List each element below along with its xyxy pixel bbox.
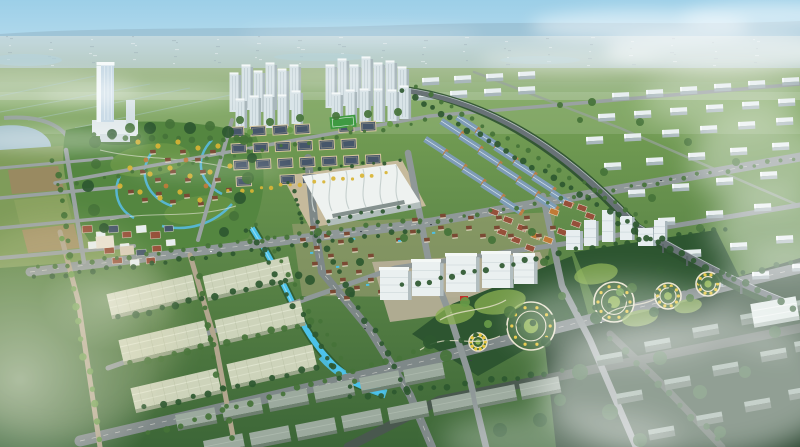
tree	[533, 256, 538, 261]
villa-building	[210, 150, 216, 155]
mall-building	[379, 267, 412, 300]
residential-slab-building	[484, 88, 501, 96]
tree	[331, 176, 335, 180]
tree	[207, 135, 213, 141]
tree	[397, 205, 401, 209]
tree	[255, 333, 260, 338]
distant-building	[176, 42, 178, 43]
tree	[598, 189, 603, 194]
tree	[300, 221, 303, 224]
distant-building	[134, 52, 138, 53]
tree	[616, 212, 622, 218]
tree	[266, 394, 272, 400]
distant-building	[256, 50, 259, 51]
tree-cluster	[155, 143, 160, 148]
tree	[520, 158, 527, 165]
tree	[337, 269, 342, 274]
tree	[340, 164, 343, 167]
tree	[205, 322, 212, 329]
tree	[189, 137, 196, 144]
tree	[373, 328, 379, 334]
tree	[516, 144, 520, 148]
tree-cluster	[236, 116, 244, 124]
flower-bed	[523, 343, 526, 346]
tree	[630, 184, 634, 188]
tree	[631, 227, 638, 234]
villa-building	[328, 254, 334, 259]
residential-slab-building	[672, 183, 689, 191]
tree-cluster	[287, 127, 293, 133]
tree	[279, 259, 283, 263]
tree	[431, 385, 436, 390]
tree	[488, 208, 492, 212]
tree	[449, 218, 453, 222]
tree-cluster	[247, 129, 253, 135]
tree	[421, 101, 427, 107]
tree-cluster	[144, 158, 149, 163]
tree	[427, 280, 432, 285]
tree	[576, 191, 583, 198]
tree	[360, 174, 364, 178]
villa-building	[480, 234, 486, 239]
tree	[613, 200, 617, 204]
tree-cluster	[165, 119, 175, 129]
tree	[417, 229, 421, 233]
tree	[290, 243, 294, 247]
tree	[560, 182, 566, 188]
tree	[547, 164, 551, 168]
tree-cluster	[636, 118, 644, 126]
tree-cluster	[345, 287, 355, 297]
highrise-tower	[388, 89, 400, 121]
distant-building	[297, 47, 300, 48]
tree-cluster	[222, 126, 234, 138]
old-town-block	[150, 231, 161, 239]
distant-building	[172, 40, 176, 41]
distant-building	[91, 39, 93, 40]
distant-building	[546, 38, 549, 39]
villa-building	[215, 178, 221, 183]
commercial-block	[272, 124, 289, 135]
tree	[272, 271, 278, 277]
tree-cluster	[488, 236, 496, 244]
tree	[352, 379, 357, 384]
tree	[233, 155, 236, 158]
tree	[379, 341, 384, 346]
tree	[418, 385, 424, 391]
distant-building	[10, 38, 13, 39]
villa-building	[212, 196, 218, 201]
villa-building	[440, 214, 446, 219]
tree-cluster	[460, 297, 470, 307]
tree	[302, 167, 305, 170]
distant-building	[131, 43, 135, 44]
tree	[162, 134, 168, 140]
tree	[204, 391, 211, 398]
tree-cluster	[88, 204, 100, 216]
tower-crown	[97, 62, 115, 66]
tree	[293, 142, 297, 146]
old-town-block	[164, 225, 173, 232]
tree	[461, 270, 466, 275]
tree	[556, 250, 562, 256]
tree	[294, 198, 298, 202]
villa-building	[170, 200, 176, 205]
villa-building	[410, 230, 416, 235]
tree	[260, 186, 263, 189]
tree-cluster	[175, 139, 180, 144]
distant-building	[423, 47, 426, 48]
tree	[296, 203, 299, 206]
villa-building	[330, 290, 336, 295]
tree-cluster	[144, 122, 156, 134]
tree	[330, 363, 336, 369]
tree	[211, 293, 218, 300]
tree	[199, 296, 204, 301]
screenshot-stage	[0, 0, 800, 447]
tree	[370, 210, 373, 213]
residential-slab-building	[598, 113, 615, 121]
tree	[361, 317, 368, 324]
city-master-plan-rendering	[0, 0, 800, 447]
tree-cluster	[394, 108, 402, 116]
tree	[400, 88, 405, 93]
tree	[192, 417, 197, 422]
tree-cluster	[205, 121, 215, 131]
tree-cluster	[117, 183, 122, 188]
tree	[163, 426, 170, 433]
tree	[260, 148, 264, 152]
tree	[502, 376, 508, 382]
tree	[477, 131, 483, 137]
tree	[415, 280, 421, 286]
distant-building	[464, 44, 467, 45]
tree-cluster	[195, 145, 200, 150]
distant-building	[590, 44, 593, 45]
flower-bed	[514, 336, 517, 339]
tree	[615, 221, 620, 226]
distant-building	[216, 46, 220, 47]
tree	[585, 194, 589, 198]
tree	[546, 201, 550, 205]
tree-cluster	[588, 98, 596, 106]
distant-building	[425, 63, 427, 64]
tree	[197, 343, 203, 349]
villa-building	[165, 158, 171, 163]
distant-building	[174, 56, 177, 57]
tree	[551, 174, 558, 181]
tree	[501, 324, 507, 330]
tree	[385, 350, 392, 357]
tree-cluster	[219, 227, 229, 237]
tree	[438, 276, 442, 280]
tree	[389, 223, 393, 227]
tree	[308, 381, 314, 387]
tree	[480, 124, 484, 128]
flower-bed	[479, 347, 482, 350]
tree	[669, 178, 673, 182]
tree	[592, 187, 597, 192]
distant-building	[342, 46, 346, 47]
old-town-block	[166, 239, 175, 246]
villa-building	[468, 216, 474, 221]
villa-building	[412, 218, 418, 223]
tree	[476, 381, 481, 386]
tree-cluster	[440, 350, 452, 362]
tree	[363, 223, 368, 228]
tree	[160, 401, 167, 408]
tree	[322, 379, 327, 384]
tree	[283, 278, 288, 283]
villa-building	[338, 240, 344, 245]
tree	[300, 296, 304, 300]
tree-cluster	[423, 335, 437, 349]
tree	[301, 312, 306, 317]
tree	[204, 256, 208, 260]
tree-cluster	[247, 153, 257, 163]
tree-cluster	[364, 110, 372, 118]
flower-bed	[482, 345, 485, 348]
tree-cluster	[204, 184, 209, 189]
tree	[325, 356, 329, 360]
tree	[659, 235, 665, 241]
tree	[385, 171, 388, 174]
tree	[289, 303, 295, 309]
flower-bed	[703, 273, 706, 276]
tree	[280, 144, 283, 147]
tree	[249, 380, 256, 387]
tree	[514, 206, 519, 211]
tree	[279, 183, 283, 187]
tree-cluster	[400, 234, 408, 242]
tree	[307, 141, 311, 145]
tree	[295, 324, 300, 329]
vehicle	[338, 298, 340, 299]
tree	[688, 232, 692, 236]
tree	[50, 158, 55, 163]
tree	[607, 208, 614, 215]
tree	[223, 339, 230, 346]
swimming-pool	[310, 252, 313, 254]
tree	[163, 261, 167, 265]
tree	[398, 159, 401, 162]
residential-slab-building	[646, 157, 663, 165]
villa-building	[314, 246, 320, 251]
tree	[681, 176, 686, 181]
tree-cluster	[177, 189, 182, 194]
villa-building	[128, 190, 134, 195]
vehicle	[660, 180, 662, 181]
tree	[318, 167, 322, 171]
swimming-pool	[366, 284, 369, 286]
distant-building	[259, 59, 262, 60]
residential-slab-building	[518, 86, 535, 94]
tree	[310, 231, 314, 235]
tree	[56, 183, 59, 186]
distant-building	[338, 44, 341, 45]
tree	[582, 180, 586, 184]
tree	[168, 247, 173, 252]
tree	[313, 365, 319, 371]
tree	[272, 249, 277, 254]
villa-building	[155, 178, 161, 183]
tree	[487, 139, 492, 144]
tree	[655, 182, 659, 186]
distant-building	[90, 46, 94, 47]
commercial-block	[360, 121, 377, 132]
tree	[625, 219, 630, 224]
tree	[350, 164, 354, 168]
villa-building	[368, 254, 374, 259]
tree	[382, 162, 386, 166]
tree	[306, 309, 311, 314]
tree	[322, 180, 325, 183]
tree	[691, 258, 696, 263]
tree	[292, 189, 296, 193]
tree	[438, 111, 445, 118]
commercial-block	[341, 138, 358, 149]
tree	[447, 115, 453, 121]
tree	[286, 181, 289, 184]
commercial-block	[297, 140, 314, 151]
tree	[404, 388, 411, 395]
circular-garden	[469, 333, 487, 351]
tree	[246, 149, 250, 153]
tree	[410, 123, 413, 126]
tree	[269, 375, 275, 381]
commercial-block	[294, 123, 311, 134]
tree	[449, 274, 455, 280]
tree	[224, 404, 229, 409]
tree	[233, 135, 240, 142]
tree	[157, 252, 161, 256]
tree	[363, 130, 366, 133]
tree	[601, 245, 606, 250]
highrise-tower	[278, 94, 290, 126]
tree	[381, 209, 385, 213]
tree	[378, 393, 384, 399]
villa-building	[536, 234, 542, 239]
tree	[220, 407, 226, 413]
tree	[324, 245, 331, 252]
tree-cluster	[125, 123, 135, 133]
tree	[219, 156, 223, 160]
highrise-tower	[374, 88, 386, 122]
tree	[439, 100, 444, 105]
tree	[348, 237, 354, 243]
flower-bed	[479, 334, 482, 337]
tree	[483, 267, 489, 273]
swimming-pool	[432, 232, 435, 234]
tree	[400, 218, 405, 223]
flower-bed	[482, 336, 485, 339]
tree	[318, 319, 323, 324]
tree	[298, 366, 305, 373]
flower-bed	[471, 345, 474, 348]
tree	[254, 223, 258, 227]
tree	[356, 305, 361, 310]
tree	[281, 325, 287, 331]
tree	[217, 251, 223, 257]
villa-building	[522, 226, 528, 231]
tree	[205, 413, 212, 420]
tree	[175, 399, 181, 405]
residential-slab-building	[624, 133, 641, 141]
tree	[676, 232, 681, 237]
commercial-block	[319, 139, 336, 150]
tree	[648, 237, 652, 241]
distant-building	[49, 49, 53, 50]
distant-building	[215, 53, 218, 54]
villa-building	[496, 216, 502, 221]
distant-building	[6, 36, 8, 37]
tree	[569, 185, 574, 190]
tree	[184, 348, 191, 355]
tree	[679, 250, 685, 256]
tree	[211, 342, 216, 347]
villa-building	[180, 150, 186, 155]
tree	[512, 155, 517, 160]
distant-building	[466, 60, 468, 61]
tree	[236, 240, 240, 244]
tree	[624, 240, 630, 246]
distant-building	[8, 52, 12, 53]
tree	[284, 292, 288, 296]
tree	[381, 128, 385, 132]
tree-cluster	[387, 121, 393, 127]
tree-cluster	[91, 159, 101, 169]
tree	[594, 202, 599, 207]
distant-building	[132, 36, 134, 37]
villa-building	[494, 226, 500, 231]
tree	[698, 280, 703, 285]
tree	[247, 400, 254, 407]
villa-building	[356, 270, 362, 275]
tree	[403, 229, 408, 234]
tree	[281, 392, 286, 397]
vehicle	[470, 360, 472, 361]
tree	[234, 404, 239, 409]
tree	[430, 105, 435, 110]
tree	[317, 239, 322, 244]
tree	[278, 280, 283, 285]
residential-slab-building	[628, 189, 645, 197]
distant-building	[383, 43, 387, 44]
highrise-tower	[360, 88, 372, 124]
flower-bed	[474, 347, 477, 350]
tree	[178, 423, 184, 429]
tree	[338, 216, 341, 219]
residential-slab-building	[454, 75, 471, 83]
distant-building	[173, 63, 175, 64]
tree	[494, 141, 501, 148]
villa-building	[142, 198, 148, 203]
tree	[572, 195, 576, 199]
tree	[376, 223, 381, 228]
tree	[103, 176, 106, 179]
tree-cluster	[656, 266, 664, 274]
tree	[284, 235, 289, 240]
tree	[250, 189, 254, 193]
tree	[303, 242, 309, 248]
tree	[325, 333, 329, 337]
tree	[315, 220, 319, 224]
tree	[243, 287, 248, 292]
tree-cluster	[600, 168, 608, 176]
villa-building	[184, 194, 190, 199]
tree-cluster	[234, 192, 246, 204]
tree	[335, 135, 339, 139]
